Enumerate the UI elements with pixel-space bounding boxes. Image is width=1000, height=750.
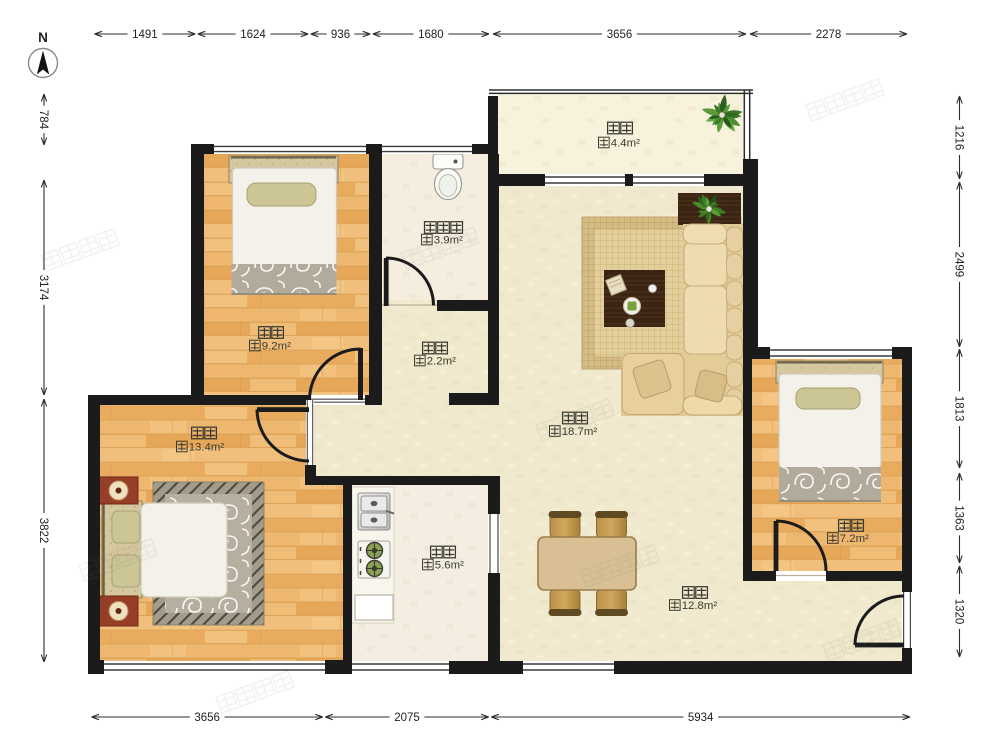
svg-text:3656: 3656 (607, 29, 633, 41)
svg-text:3174: 3174 (37, 275, 49, 301)
svg-text:1624: 1624 (240, 29, 266, 41)
svg-text:9.2m²: 9.2m² (262, 341, 291, 353)
svg-text:3656: 3656 (194, 712, 220, 724)
svg-text:4.4m²: 4.4m² (611, 138, 640, 150)
svg-text:1320: 1320 (953, 599, 965, 625)
svg-text:784: 784 (37, 110, 49, 130)
svg-text:1813: 1813 (953, 396, 965, 422)
svg-text:13.4m²: 13.4m² (189, 442, 225, 454)
svg-text:2499: 2499 (953, 252, 965, 278)
svg-text:5.6m²: 5.6m² (435, 560, 464, 572)
svg-text:7.2m²: 7.2m² (840, 533, 869, 545)
svg-text:12.8m²: 12.8m² (682, 600, 718, 612)
svg-text:1216: 1216 (953, 125, 965, 151)
svg-text:2075: 2075 (394, 712, 420, 724)
svg-text:2.2m²: 2.2m² (427, 356, 456, 368)
svg-text:936: 936 (331, 29, 350, 41)
svg-text:1363: 1363 (953, 505, 965, 531)
svg-text:3822: 3822 (37, 518, 49, 544)
svg-text:1680: 1680 (418, 29, 444, 41)
svg-text:2278: 2278 (816, 29, 842, 41)
svg-text:1491: 1491 (132, 29, 158, 41)
svg-text:5934: 5934 (688, 712, 714, 724)
svg-text:N: N (38, 30, 48, 45)
